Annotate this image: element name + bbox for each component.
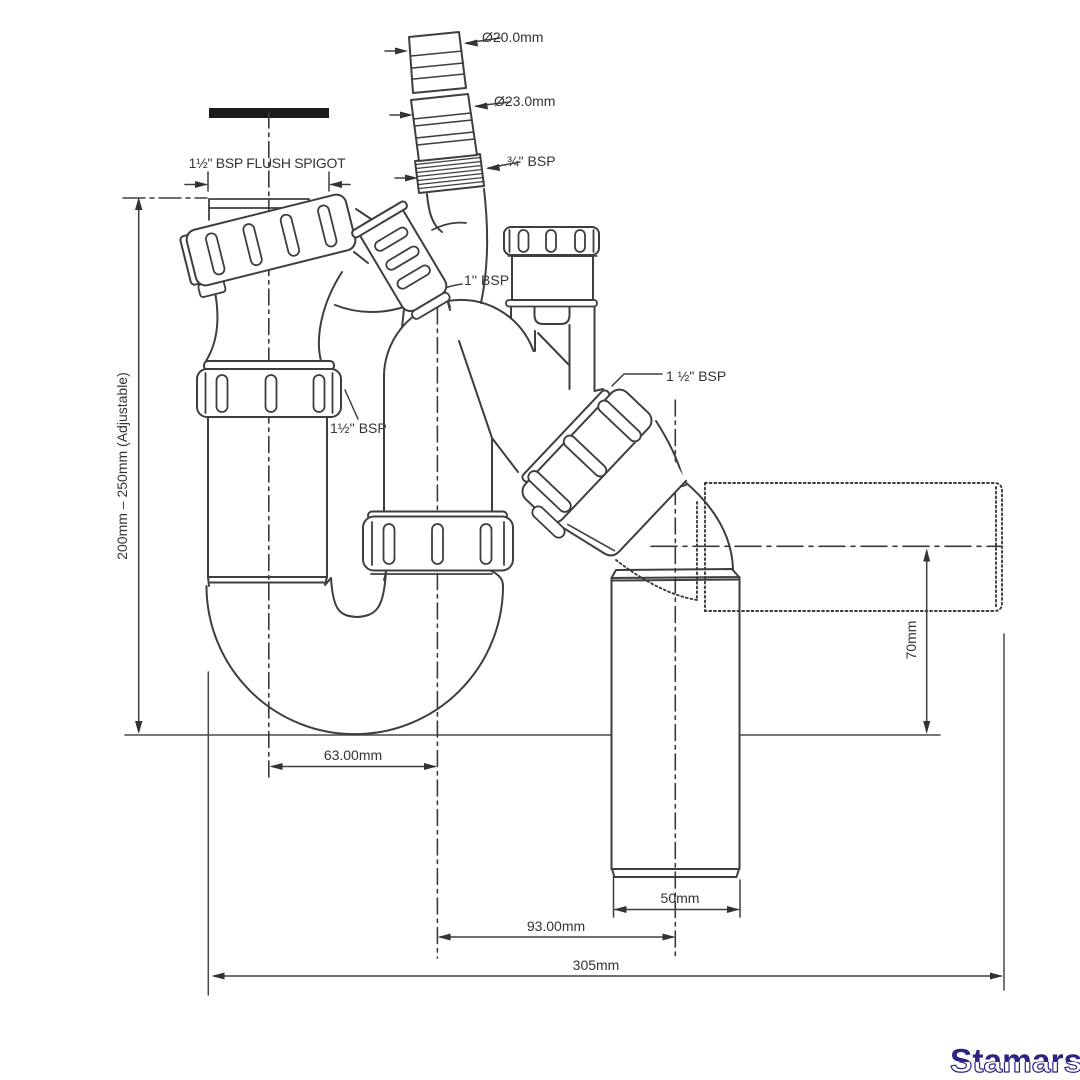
svg-text:Ø20.0mm: Ø20.0mm (482, 29, 543, 45)
svg-text:1½'' BSP: 1½'' BSP (330, 420, 387, 436)
svg-text:200mm – 250mm (Adjustable): 200mm – 250mm (Adjustable) (114, 372, 130, 560)
svg-text:¾" BSP: ¾" BSP (507, 153, 556, 169)
svg-text:Ø23.0mm: Ø23.0mm (494, 93, 555, 109)
svg-text:1 ½" BSP: 1 ½" BSP (666, 368, 726, 384)
svg-text:305mm: 305mm (573, 957, 620, 973)
svg-text:63.00mm: 63.00mm (324, 747, 382, 763)
svg-text:1'' BSP: 1'' BSP (464, 272, 509, 288)
svg-text:93.00mm: 93.00mm (527, 918, 585, 934)
svg-text:70mm: 70mm (903, 621, 919, 660)
svg-text:50mm: 50mm (661, 890, 700, 906)
svg-text:1½" BSP FLUSH SPIGOT: 1½" BSP FLUSH SPIGOT (189, 155, 346, 171)
